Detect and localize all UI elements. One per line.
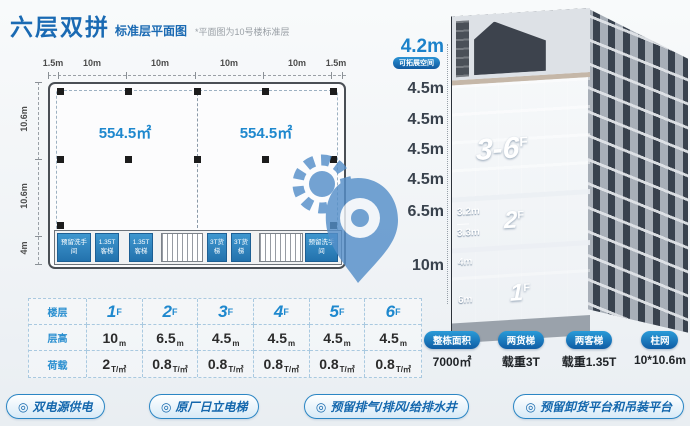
unit-area-label: 554.5㎡ — [216, 122, 316, 143]
stat-passenger-lifts: 两客梯 载重1.35T — [562, 331, 617, 370]
feature-label: 双电源供电 — [32, 398, 92, 415]
sub-height-label: 3.2m — [457, 206, 480, 218]
height-cell: 4.5m — [254, 325, 310, 351]
building-rendering: 3-6F 3.2m 3.3m 2F 4m 6m 1F — [448, 0, 690, 340]
passenger-lift-box: 1.35T客梯 — [95, 233, 119, 262]
height-mark: 6.5m — [390, 203, 444, 221]
stat-value: 7000㎡ — [433, 353, 472, 370]
watermark-logo-icon — [288, 148, 400, 288]
top-dim: 10m — [77, 58, 107, 68]
height-mark: 4.5m — [390, 141, 444, 159]
target-circle-icon: ◎ — [525, 400, 535, 414]
load-cell: 0.8T/㎡ — [254, 351, 310, 377]
height-mark: 4.2m — [390, 36, 444, 58]
row-header: 层高 — [29, 325, 87, 351]
side-dim: 10.6m — [19, 181, 31, 211]
height-cell: 10m — [87, 325, 143, 351]
load-cell: 0.8T/㎡ — [143, 351, 199, 377]
floor-2-section: 3.2m 3.3m 2F — [452, 194, 590, 248]
height-cell: 4.5m — [310, 325, 366, 351]
freight-lift-box: 3T货梯 — [231, 233, 251, 262]
stat-pill: 两客梯 — [566, 331, 613, 349]
column — [57, 156, 64, 163]
top-dim: 10m — [282, 58, 312, 68]
unit-area-label: 554.5㎡ — [75, 122, 175, 143]
rooftop-section — [452, 8, 590, 80]
column — [194, 88, 201, 95]
ruler-line — [38, 82, 39, 265]
feature-label: 预留卸货平台和吊装平台 — [540, 398, 672, 415]
stat-value: 载重3T — [502, 353, 540, 370]
stat-pill: 两货梯 — [498, 331, 545, 349]
stat-freight-lifts: 两货梯 载重3T — [498, 331, 545, 370]
column — [125, 156, 132, 163]
stat-value: 载重1.35T — [562, 353, 617, 370]
page-title: 六层双拼 — [10, 8, 110, 42]
feature-badge-reserved-shafts: ◎ 预留排气/排风/给排水井 — [304, 394, 469, 419]
target-circle-icon: ◎ — [316, 400, 326, 414]
row-header: 楼层 — [29, 299, 87, 325]
target-circle-icon: ◎ — [161, 400, 171, 414]
column — [194, 156, 201, 163]
top-dim: 1.5m — [38, 58, 68, 68]
top-dim: 1.5m — [321, 58, 351, 68]
stat-pill: 柱网 — [641, 331, 678, 349]
building-front-facade: 3-6F 3.2m 3.3m 2F 4m 6m 1F — [452, 8, 590, 338]
left-dimension-ruler: 10.6m 10.6m 4m — [12, 82, 42, 265]
stat-column-grid: 柱网 10*10.6m — [634, 331, 686, 370]
feature-badge-hitachi-elevator: ◎ 原厂日立电梯 — [149, 394, 260, 419]
load-cell: 0.8T/㎡ — [198, 351, 254, 377]
floor-range-label: 3-6F — [476, 131, 528, 168]
load-cell: 0.8T/㎡ — [310, 351, 366, 377]
side-dim: 10.6m — [19, 104, 31, 134]
top-dim: 10m — [145, 58, 175, 68]
floor-cell: 2F — [143, 299, 199, 325]
height-mark-tag: 可拓展空间 — [393, 57, 440, 69]
sub-height-label: 4m — [458, 256, 472, 268]
stat-pill: 整栋面积 — [424, 331, 480, 349]
floor-label: 1F — [510, 279, 530, 308]
sub-height-label: 3.3m — [457, 227, 480, 239]
building-side-facade — [588, 2, 688, 336]
top-dimension-ruler: 1.5m 10m 10m 10m 10m 1.5m — [44, 56, 346, 80]
stat-value: 10*10.6m — [634, 353, 686, 367]
floor-cell: 3F — [198, 299, 254, 325]
page-note: *平面图为10号楼标准层 — [195, 25, 290, 38]
column — [330, 88, 337, 95]
height-cell: 6.5m — [143, 325, 199, 351]
marketing-infographic: 六层双拼 标准层平面图 *平面图为10号楼标准层 1.5m 10m 10m 10… — [0, 0, 690, 426]
height-mark: 4.5m — [390, 80, 444, 98]
feature-badges: ◎ 双电源供电 ◎ 原厂日立电梯 ◎ 预留排气/排风/给排水井 ◎ 预留卸货平台… — [6, 394, 684, 419]
height-mark: 10m — [390, 257, 444, 275]
floor-label: 2F — [504, 206, 524, 235]
freight-lift-box: 3T货梯 — [207, 233, 227, 262]
row-header: 荷载 — [29, 351, 87, 377]
column — [262, 156, 269, 163]
height-cell: 4.5m — [365, 325, 421, 351]
sub-height-label: 6m — [458, 294, 472, 306]
floor-cell: 5F — [310, 299, 366, 325]
column — [262, 88, 269, 95]
target-circle-icon: ◎ — [18, 400, 28, 414]
column — [57, 222, 64, 229]
washroom-box: 预留洗手间 — [57, 233, 91, 262]
floor-cell: 1F — [87, 299, 143, 325]
page-subtitle: 标准层平面图 — [115, 22, 187, 39]
building-stats: 整栋面积 7000㎡ 两货梯 载重3T 两客梯 载重1.35T 柱网 10*10… — [424, 331, 686, 370]
feature-badge-loading-platform: ◎ 预留卸货平台和吊装平台 — [513, 394, 684, 419]
load-cell: 2T/㎡ — [87, 351, 143, 377]
feature-label: 原厂日立电梯 — [175, 398, 247, 415]
feature-label: 预留排气/排风/给排水井 — [330, 398, 457, 415]
feature-badge-dual-power: ◎ 双电源供电 — [6, 394, 105, 419]
load-cell: 0.8T/㎡ — [365, 351, 421, 377]
column — [57, 88, 64, 95]
stairs — [161, 233, 203, 262]
floor-1-section: 4m 6m 1F — [452, 245, 590, 323]
floor-cell: 4F — [254, 299, 310, 325]
height-mark: 4.5m — [390, 111, 444, 129]
floors-3-6-section: 3-6F — [452, 77, 590, 197]
passenger-lift-box: 1.35T客梯 — [129, 233, 153, 262]
top-dim: 10m — [214, 58, 244, 68]
ruler-line — [48, 75, 346, 76]
height-cell: 4.5m — [198, 325, 254, 351]
column — [125, 88, 132, 95]
side-dim: 4m — [19, 233, 31, 263]
floor-cell: 6F — [365, 299, 421, 325]
floor-spec-table: 楼层 1F 2F 3F 4F 5F 6F 层高 10m 6.5m 4.5m 4.… — [28, 298, 422, 378]
header: 六层双拼 标准层平面图 *平面图为10号楼标准层 — [10, 8, 290, 42]
stat-total-area: 整栋面积 7000㎡ — [424, 331, 480, 370]
height-mark: 4.5m — [390, 171, 444, 189]
